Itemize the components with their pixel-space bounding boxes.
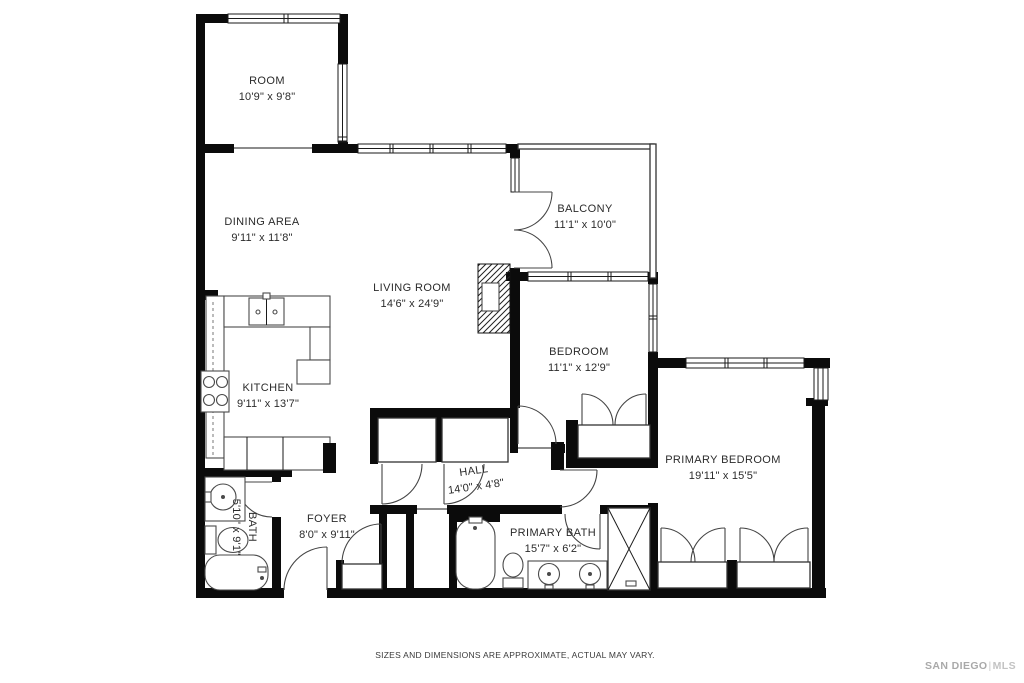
room-dims: 10'9" x 9'8" — [239, 89, 296, 105]
label-bath: BATH 5'10" x 9'1" — [228, 499, 260, 556]
stove — [201, 371, 229, 412]
primary-bath-name: PRIMARY BATH — [510, 525, 596, 541]
label-dining-area: DINING AREA 9'11" x 11'8" — [224, 214, 299, 246]
mls-logo-divider: | — [988, 660, 991, 672]
dining-dims: 9'11" x 11'8" — [224, 230, 299, 246]
bath-name: BATH — [244, 499, 260, 556]
disclaimer-text: SIZES AND DIMENSIONS ARE APPROXIMATE, AC… — [375, 650, 655, 660]
fireplace — [478, 264, 510, 333]
shower — [608, 508, 650, 590]
primary-bedroom-dims: 19'11" x 15'5" — [665, 468, 781, 484]
bath-dims: 5'10" x 9'1" — [228, 499, 244, 556]
label-bedroom: BEDROOM 11'1" x 12'9" — [548, 344, 610, 376]
foyer-name: FOYER — [299, 511, 355, 527]
label-kitchen: KITCHEN 9'11" x 13'7" — [237, 380, 299, 412]
bedroom-name: BEDROOM — [548, 344, 610, 360]
bathtub — [205, 555, 268, 590]
primary-bathtub — [456, 517, 495, 589]
balcony-name: BALCONY — [554, 201, 616, 217]
primary-toilet — [503, 553, 523, 588]
bedroom-dims: 11'1" x 12'9" — [548, 360, 610, 376]
primary-bedroom-name: PRIMARY BEDROOM — [665, 452, 781, 468]
windows-layer — [228, 14, 828, 509]
mls-logo-name: SAN DIEGO — [925, 660, 988, 672]
kitchen-dims: 9'11" x 13'7" — [237, 396, 299, 412]
mls-logo-suffix: MLS — [993, 660, 1016, 672]
label-room: ROOM 10'9" x 9'8" — [239, 73, 296, 105]
floor-plan-drawing — [0, 0, 1024, 683]
label-living-room: LIVING ROOM 14'6" x 24'9" — [373, 280, 451, 312]
living-dims: 14'6" x 24'9" — [373, 296, 451, 312]
floor-plan: ROOM 10'9" x 9'8" DINING AREA 9'11" x 11… — [0, 0, 1024, 683]
living-name: LIVING ROOM — [373, 280, 451, 296]
double-vanity — [528, 561, 607, 589]
dining-name: DINING AREA — [224, 214, 299, 230]
label-primary-bath: PRIMARY BATH 15'7" x 6'2" — [510, 525, 596, 557]
label-primary-bedroom: PRIMARY BEDROOM 19'11" x 15'5" — [665, 452, 781, 484]
kitchen-sink — [249, 293, 284, 325]
label-foyer: FOYER 8'0" x 9'11" — [299, 511, 355, 543]
foyer-dims: 8'0" x 9'11" — [299, 527, 355, 543]
balcony-dims: 11'1" x 10'0" — [554, 217, 616, 233]
label-balcony: BALCONY 11'1" x 10'0" — [554, 201, 616, 233]
primary-bath-dims: 15'7" x 6'2" — [510, 541, 596, 557]
mls-logo: SAN DIEGO|MLS — [925, 660, 1016, 672]
kitchen-name: KITCHEN — [237, 380, 299, 396]
room-name: ROOM — [239, 73, 296, 89]
